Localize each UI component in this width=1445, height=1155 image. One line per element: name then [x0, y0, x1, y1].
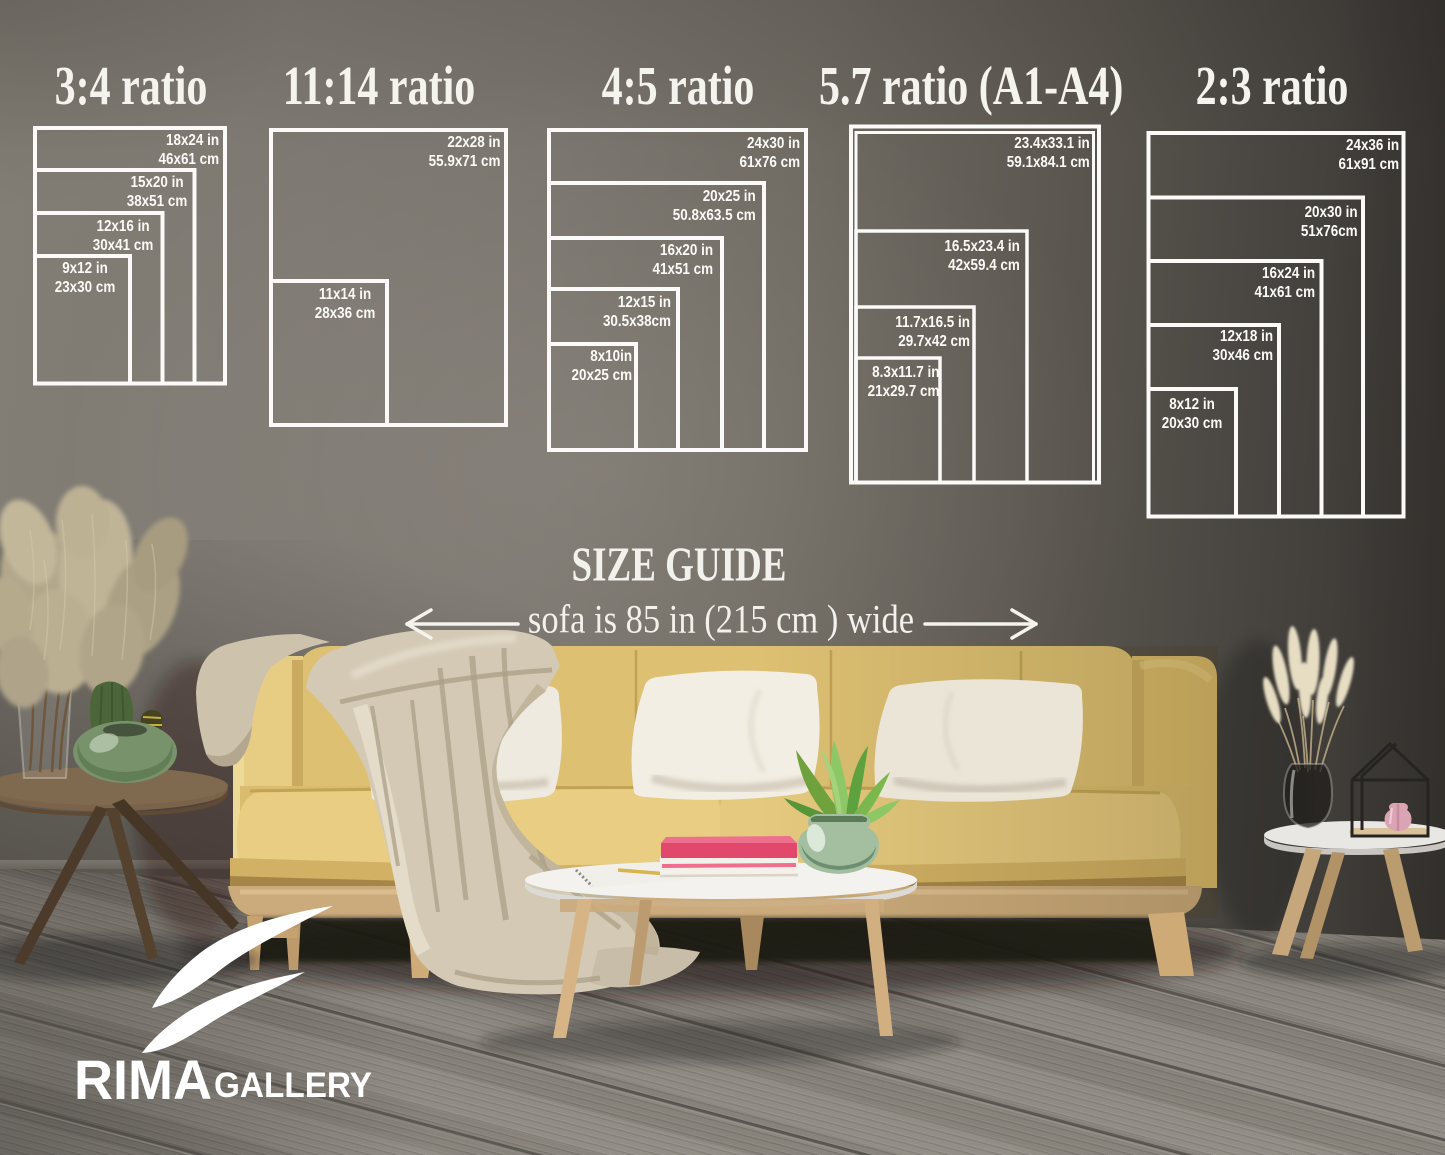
svg-text:RIMA: RIMA	[74, 1048, 212, 1111]
svg-text:GALLERY: GALLERY	[214, 1066, 372, 1105]
